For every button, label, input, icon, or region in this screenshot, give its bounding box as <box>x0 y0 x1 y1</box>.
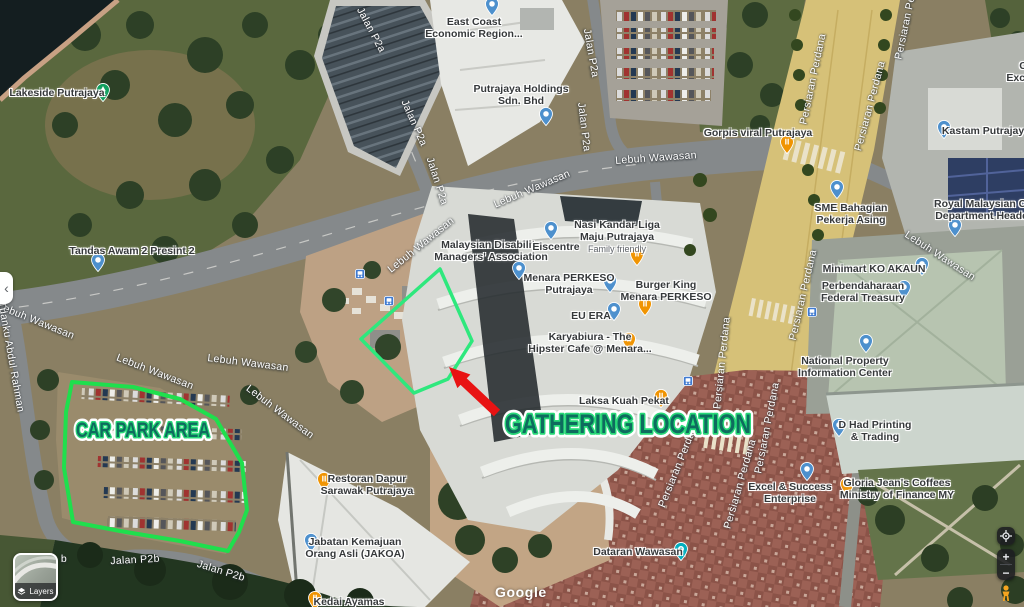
road-label-persiaran-perdana-14: Persiaran Perdana <box>852 60 888 153</box>
nasi-kandar-liga-maju-putrajaya-label[interactable]: Nasi Kandar LigaMaju PutrajayaFamily fri… <box>574 219 660 254</box>
royal-malaysian-customs-label[interactable]: Royal Malaysian CustDepartment Headqua <box>934 198 1024 223</box>
road-label-persiaran-perdana-17: Persiaran Perdana <box>711 316 733 409</box>
eiscentre-pin-icon[interactable] <box>544 221 558 240</box>
google-maps-satellite-view[interactable]: Jalan P2aJalan P2aJalan P2aJalan P2aJala… <box>0 0 1024 607</box>
malaysian-disability-managers-association-label[interactable]: Malaysian DisabilityManagers' Associatio… <box>434 239 548 264</box>
sme-bahagian-pekerja-asing-pin-icon[interactable] <box>830 180 844 199</box>
burger-king-menara-perkeso-label[interactable]: Burger KingMenara PERKESO <box>620 279 711 304</box>
map-labels-layer: Jalan P2aJalan P2aJalan P2aJalan P2aJala… <box>0 0 1024 607</box>
road-label-lebuh-wawasan-10: Lebuh Wawasan <box>492 168 572 211</box>
road-label-jalan-p2a-3: Jalan P2a <box>581 28 601 79</box>
road-label-jalan-p2a-1: Jalan P2a <box>398 98 429 148</box>
excel-success-enterprise-pin-icon[interactable] <box>800 462 814 481</box>
dataran-wawasan-label[interactable]: Dataran Wawasan <box>593 546 682 558</box>
bus-stop-icon-1[interactable] <box>384 296 394 306</box>
menara-perkeso-putrajaya-label[interactable]: Menara PERKESOPutrajaya <box>523 272 614 297</box>
pegman-control[interactable] <box>1000 585 1012 602</box>
perbendaharaan-federal-treasury-label[interactable]: PerbendaharaanFederal Treasury <box>821 280 905 305</box>
bus-stop-icon-3[interactable] <box>807 307 817 317</box>
google-watermark: Google <box>495 584 547 600</box>
karyabiura-hipster-cafe-label[interactable]: Karyabiura - TheHipster Cafe @ Menara... <box>528 331 651 356</box>
road-label-lebuh-wawasan-6: Lebuh Wawasan <box>115 352 196 392</box>
road-label-lebuh-wawasan-8: Lebuh Wawasan <box>244 383 316 442</box>
road-label-persiaran-perdana-15: Persiaran Perdana <box>892 0 923 61</box>
zoom-out-button[interactable]: − <box>997 565 1015 580</box>
road-label-jalan-p2b-22: Jalan P2b <box>110 553 160 568</box>
d-had-printing-trading-label[interactable]: D Had Printing& Trading <box>839 419 912 444</box>
road-label-persiaran-perdana-13: Persiaran Perdana <box>797 32 828 125</box>
eu-era-label[interactable]: EU ERA <box>571 310 611 322</box>
road-label-persiaran-perdana-16: Persiaran Perdana <box>787 249 820 342</box>
gloria-jeans-coffees-ministry-of-finance-label[interactable]: Gloria Jean's CoffeesMinistry of Finance… <box>840 477 954 502</box>
side-panel-collapse-button[interactable]: ‹ <box>0 272 13 304</box>
eiscentre-label[interactable]: Eiscentre <box>532 241 579 253</box>
road-label-lebuh-wawasan-7: Lebuh Wawasan <box>207 352 290 374</box>
restoran-dapur-sarawak-putrajaya-label[interactable]: Restoran DapurSarawak Putrajaya <box>321 473 414 498</box>
east-coast-economic-region-label[interactable]: East CoastEconomic Region... <box>425 16 522 41</box>
putrajaya-holdings-pin-icon[interactable] <box>539 107 553 126</box>
my-location-icon <box>1000 530 1012 542</box>
national-property-information-center-pin-icon[interactable] <box>859 334 873 353</box>
kastam-putrajaya-label[interactable]: Kastam Putrajaya <box>942 125 1024 137</box>
bus-stop-icon-2[interactable] <box>683 376 693 386</box>
road-label-jalan-p2b-23: Jalan P2b <box>196 558 247 584</box>
tandas-awam-2-presint-2-label[interactable]: Tandas Awam 2 Presint 2 <box>69 245 194 257</box>
kedai-ayamas-label[interactable]: Kedai Ayamas <box>313 596 384 607</box>
road-label-b-24: b <box>61 553 67 565</box>
laksa-kuah-pekat-label[interactable]: Laksa Kuah Pekat <box>579 395 669 407</box>
my-location-button[interactable] <box>997 527 1015 545</box>
excise-partial-label[interactable]: CExcise <box>1006 60 1024 85</box>
putrajaya-holdings-label[interactable]: Putrajaya HoldingsSdn. Bhd <box>473 83 568 108</box>
road-label-jalan-p2a-4: Jalan P2a <box>575 102 593 153</box>
excel-success-enterprise-label[interactable]: Excel & SuccessEnterprise <box>748 481 831 506</box>
layers-label: Layers <box>29 587 53 596</box>
road-label-persiaran-perdana-20: Persiaran Perdana <box>752 381 781 474</box>
sme-bahagian-pekerja-asing-label[interactable]: SME BahagianPekerja Asing <box>815 202 888 227</box>
minimart-ko-akaun-label[interactable]: Minimart KO AKAUN <box>823 263 926 275</box>
left-chevron-icon: ‹ <box>4 280 9 296</box>
road-label-jalan-p2a-2: Jalan P2a <box>424 156 451 207</box>
bus-stop-icon-0[interactable] <box>355 269 365 279</box>
national-property-information-center-label[interactable]: National PropertyInformation Center <box>798 355 892 380</box>
road-label-lebuh-wawasan-11: Lebuh Wawasan <box>615 149 697 167</box>
road-label-persiaran-perdana-18: Persiaran Perdana <box>656 419 702 509</box>
gorpis-viral-putrajaya-label[interactable]: Gorpis viral Putrajaya <box>704 127 813 139</box>
road-label-jalan-p2a-0: Jalan P2a <box>354 5 388 54</box>
jabatan-kemajuan-orang-asli-jakoa-label[interactable]: Jabatan KemajuanOrang Asli (JAKOA) <box>305 536 404 561</box>
zoom-control: + − <box>997 549 1015 580</box>
lakeside-putrajaya-label[interactable]: Lakeside Putrajaya <box>9 87 104 99</box>
layers-icon <box>17 587 26 596</box>
east-coast-economic-region-pin-icon[interactable] <box>485 0 499 16</box>
zoom-in-button[interactable]: + <box>997 549 1015 564</box>
layers-button[interactable]: Layers <box>13 553 58 601</box>
pegman-icon <box>1000 585 1012 602</box>
